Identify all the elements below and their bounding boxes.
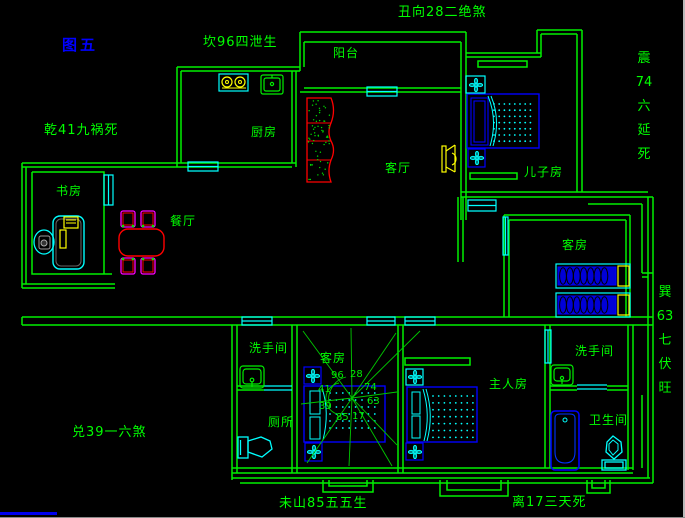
window-child-room <box>468 200 496 211</box>
annotation-east-lower-seg: 七 <box>658 334 671 347</box>
nightstand-lamp-icon <box>469 78 482 91</box>
dining-chair <box>141 258 155 274</box>
room-label-living: 客厅 <box>385 162 411 174</box>
room-label-master: 主人房 <box>489 378 528 390</box>
annotation-northeast: 丑向28二绝煞 <box>398 6 487 19</box>
compass-number: 85 <box>336 413 349 423</box>
annotation-northwest: 乾41九祸死 <box>44 124 119 137</box>
annotation-east-lower: 巽 63 七 伏 旺 <box>654 286 676 395</box>
compass-number: 28 <box>350 370 363 380</box>
master-bed <box>407 387 477 442</box>
floor-plan-drawing[interactable] <box>0 0 685 518</box>
compass-number: 63 <box>367 397 380 407</box>
wall-balcony <box>300 32 466 92</box>
master-nightstand-top <box>406 369 423 385</box>
wall-north-long <box>22 163 296 167</box>
child-bed-dots <box>493 103 531 142</box>
toilet-west <box>238 437 272 458</box>
annotation-east-upper-seg: 死 <box>637 148 650 161</box>
nightstand-lamp-icon <box>307 445 320 458</box>
annotation-east-lower-seg: 旺 <box>658 382 671 395</box>
dining-chairs <box>121 211 155 274</box>
window-guest-center <box>367 317 395 325</box>
compass-number: 74 <box>364 383 377 393</box>
annotation-east-upper-seg: 六 <box>637 100 650 113</box>
guest-twin-bed-2 <box>556 293 630 317</box>
annotation-east-upper-seg: 74 <box>636 76 653 89</box>
fengshui-compass <box>301 328 420 466</box>
annotation-east-lower-seg: 伏 <box>658 358 671 371</box>
toilet-east <box>602 436 626 470</box>
child-nightstand-top <box>466 76 485 93</box>
washroom-west-sink <box>240 366 264 388</box>
dining-chair <box>141 211 155 227</box>
child-bed <box>467 94 539 148</box>
dining-table <box>119 229 164 256</box>
guest-center-nightstand-top <box>304 367 321 384</box>
compass-number: 39 <box>319 402 332 412</box>
annotation-north: 坎96四泄生 <box>203 36 278 49</box>
room-label-toilet: 厕所 <box>268 416 294 428</box>
room-label-guest-center: 客房 <box>320 352 346 364</box>
annotation-east-upper-seg: 震 <box>637 52 650 65</box>
compass-number: 41 <box>318 385 331 395</box>
door-study <box>104 175 113 205</box>
nightstand-lamp-icon <box>470 151 483 164</box>
cad-viewport[interactable]: 图五 坎96四泄生 丑向28二绝煞 乾41九祸死 兑39一六煞 未山85五五生 … <box>0 0 685 518</box>
washroom-east-sink <box>551 365 573 385</box>
study-desk <box>53 216 84 269</box>
living-tv <box>442 145 456 172</box>
wall-corridor-south <box>22 317 653 325</box>
nightstand-lamp-icon <box>408 445 421 458</box>
study-chair <box>34 230 54 254</box>
master-nightstand-bottom <box>406 443 423 460</box>
annotation-east-lower-seg: 63 <box>657 310 674 323</box>
room-label-guest-east: 客房 <box>562 239 588 251</box>
annotation-east-upper-seg: 延 <box>637 124 650 137</box>
figure-number-label: 图五 <box>62 38 98 53</box>
living-sofa <box>307 98 334 182</box>
wall-south <box>232 468 653 483</box>
compass-number: 96 <box>331 371 344 381</box>
room-label-bathroom: 卫生间 <box>589 414 628 426</box>
bathtub <box>551 411 579 470</box>
door-toilet <box>264 386 292 390</box>
child-nightstand-bottom <box>468 149 485 167</box>
annotation-west: 兑39一六煞 <box>72 426 147 439</box>
wall-right-steps <box>588 197 653 483</box>
compass-number: 17 <box>352 412 365 422</box>
room-label-washroom-west: 洗手间 <box>249 342 288 354</box>
room-label-balcony: 阳台 <box>333 47 359 59</box>
sofa-fabric-dots <box>308 100 330 180</box>
child-closet-bottom <box>470 173 517 179</box>
master-bed-dots <box>432 395 474 438</box>
room-label-son-room: 儿子房 <box>524 166 563 178</box>
master-closet <box>405 358 470 365</box>
dining-chair <box>121 258 135 274</box>
room-label-study: 书房 <box>56 185 82 197</box>
room-label-dining: 餐厅 <box>170 215 196 227</box>
kitchen-sink <box>261 75 283 94</box>
bottom-ui-fragment <box>0 512 57 515</box>
annotation-east-upper: 震 74 六 延 死 <box>633 52 655 161</box>
kitchen-stove <box>219 74 248 91</box>
room-label-kitchen: 厨房 <box>251 126 277 138</box>
dining-chair <box>121 211 135 227</box>
child-closet-top <box>478 61 527 67</box>
guest-twin-bed-1 <box>556 264 630 288</box>
window-master <box>405 317 435 325</box>
annotation-south-left: 未山85五五生 <box>279 497 368 510</box>
room-label-washroom-east: 洗手间 <box>575 345 614 357</box>
nightstand-lamp-icon <box>408 370 421 383</box>
nightstand-lamp-icon <box>306 369 319 382</box>
annotation-south-right: 离17三天死 <box>512 496 587 509</box>
annotation-east-lower-seg: 巽 <box>658 286 671 299</box>
windows <box>104 87 607 390</box>
window-washroom-west <box>242 317 272 325</box>
door-bathroom <box>577 385 607 389</box>
